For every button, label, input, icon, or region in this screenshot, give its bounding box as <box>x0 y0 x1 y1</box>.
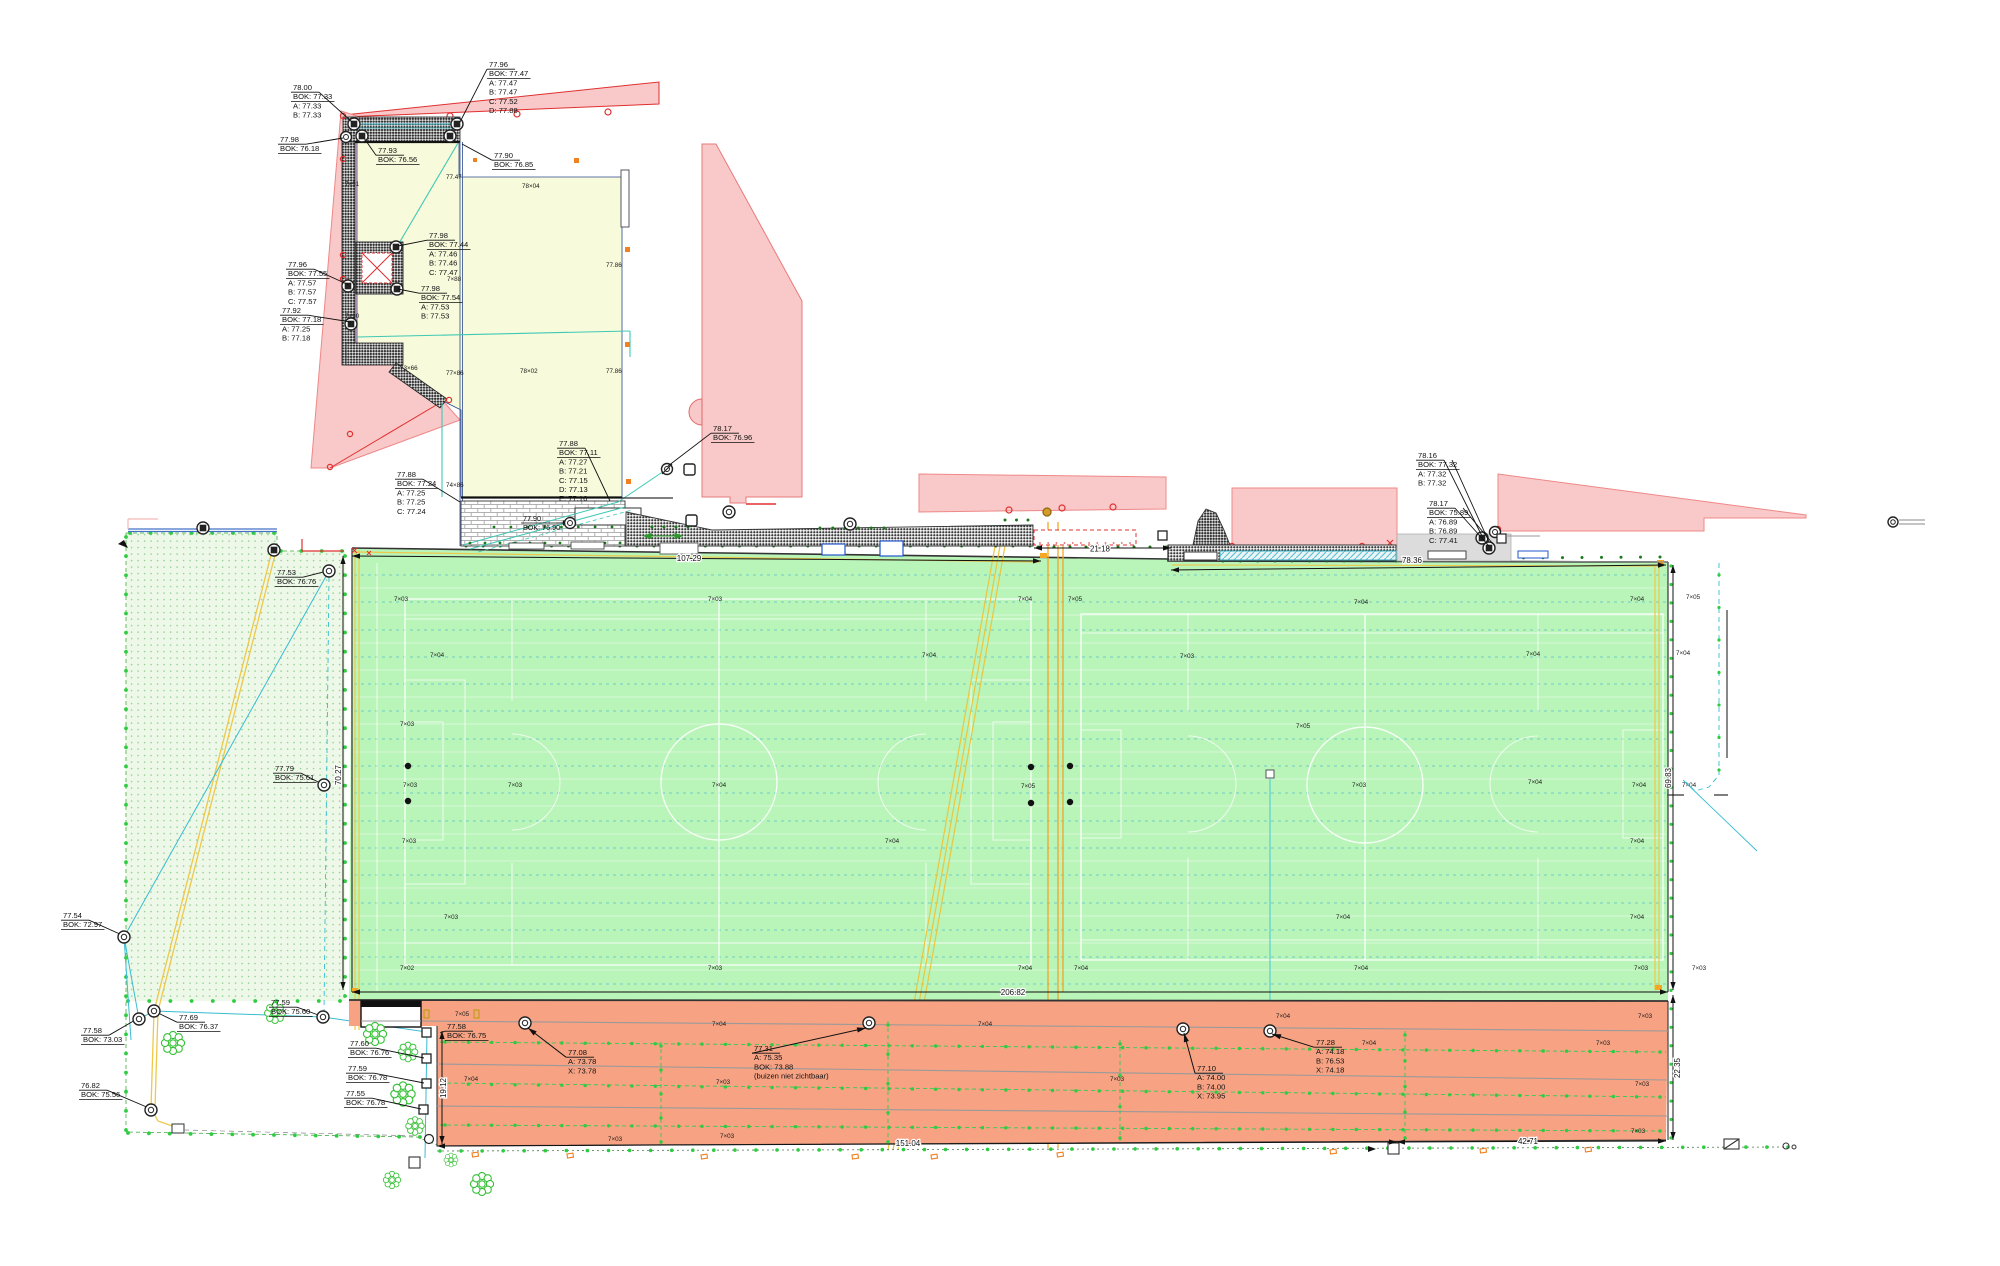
svg-text:107.29: 107.29 <box>677 554 702 563</box>
svg-text:77.96: 77.96 <box>489 60 508 69</box>
svg-text:7×04: 7×04 <box>1074 965 1089 972</box>
svg-text:77.86: 77.86 <box>606 368 622 375</box>
svg-text:7×04: 7×04 <box>1354 965 1369 972</box>
svg-text:C: 77.57: C: 77.57 <box>288 297 317 306</box>
svg-text:A: 75.35: A: 75.35 <box>754 1053 782 1062</box>
svg-text:7×04: 7×04 <box>1362 1040 1377 1047</box>
svg-text:B: 77.53: B: 77.53 <box>421 312 449 321</box>
svg-text:78.00: 78.00 <box>293 83 312 92</box>
svg-text:A: 77.47: A: 77.47 <box>489 78 517 87</box>
svg-text:7×03: 7×03 <box>1352 782 1367 789</box>
svg-text:B: 77.32: B: 77.32 <box>1418 479 1446 488</box>
svg-text:78.16: 78.16 <box>1418 451 1437 460</box>
svg-text:A: 76.89: A: 76.89 <box>1429 517 1457 526</box>
svg-text:7×03: 7×03 <box>394 596 409 603</box>
svg-text:7×02: 7×02 <box>400 965 415 972</box>
svg-text:70.27: 70.27 <box>334 764 343 785</box>
svg-text:B: 76.89: B: 76.89 <box>1429 527 1457 536</box>
svg-text:151.04: 151.04 <box>896 1139 921 1148</box>
svg-text:C: 77.47: C: 77.47 <box>429 268 458 277</box>
svg-text:A: 74.18: A: 74.18 <box>1316 1047 1344 1056</box>
svg-text:BOK: 76.85: BOK: 76.85 <box>494 160 533 169</box>
svg-text:A: 77.25: A: 77.25 <box>282 324 310 333</box>
svg-text:BOK: 77.44: BOK: 77.44 <box>429 240 468 249</box>
svg-text:7×05: 7×05 <box>1686 594 1701 601</box>
svg-text:B: 77.18: B: 77.18 <box>282 334 310 343</box>
svg-text:B: 74.00: B: 74.00 <box>1197 1082 1225 1091</box>
svg-text:7×04: 7×04 <box>978 1021 993 1028</box>
svg-text:A: 77.33: A: 77.33 <box>293 101 321 110</box>
svg-text:X: 73.95: X: 73.95 <box>1197 1092 1225 1101</box>
svg-text:A: 77.46: A: 77.46 <box>429 249 457 258</box>
svg-text:7×04: 7×04 <box>1276 1013 1291 1020</box>
svg-text:77.10: 77.10 <box>1197 1064 1216 1073</box>
svg-text:B: 77.47: B: 77.47 <box>489 88 517 97</box>
svg-text:D: 77.88: D: 77.88 <box>489 106 518 115</box>
svg-text:7×03: 7×03 <box>608 1136 623 1143</box>
svg-text:A: 77.57: A: 77.57 <box>288 278 316 287</box>
svg-text:BOK: 77.33: BOK: 77.33 <box>293 92 332 101</box>
svg-text:BOK: 76.75: BOK: 76.75 <box>447 1031 486 1040</box>
svg-text:7×03: 7×03 <box>1110 1076 1125 1083</box>
svg-text:78.36: 78.36 <box>1402 556 1423 565</box>
svg-text:7×03: 7×03 <box>1596 1040 1611 1047</box>
svg-text:7×03: 7×03 <box>1180 653 1195 660</box>
svg-text:BOK: 77.11: BOK: 77.11 <box>559 448 598 457</box>
svg-text:77.58: 77.58 <box>83 1026 102 1035</box>
svg-text:42.71: 42.71 <box>1518 1137 1539 1146</box>
svg-text:(buizen niet zichtbaar): (buizen niet zichtbaar) <box>754 1072 829 1081</box>
svg-text:7×03: 7×03 <box>708 596 723 603</box>
svg-text:BOK: 77.54: BOK: 77.54 <box>421 293 460 302</box>
svg-text:7×91: 7×91 <box>345 181 360 188</box>
svg-text:C: 77.15: C: 77.15 <box>559 476 588 485</box>
svg-text:77.92: 77.92 <box>282 306 301 315</box>
svg-text:X: 73.78: X: 73.78 <box>568 1066 596 1075</box>
svg-text:BOK: 77.47: BOK: 77.47 <box>489 69 528 78</box>
svg-text:B: 77.57: B: 77.57 <box>288 288 316 297</box>
svg-text:A: 77.27: A: 77.27 <box>559 457 587 466</box>
svg-text:77.98: 77.98 <box>280 135 299 144</box>
svg-text:7×04: 7×04 <box>1018 965 1033 972</box>
svg-text:78.17: 78.17 <box>713 424 732 433</box>
svg-text:77.90: 77.90 <box>523 514 541 523</box>
svg-text:7×04: 7×04 <box>1354 599 1369 606</box>
svg-text:7×03: 7×03 <box>403 782 418 789</box>
svg-text:7×03: 7×03 <box>508 782 523 789</box>
svg-text:A: 73.78: A: 73.78 <box>568 1057 596 1066</box>
svg-text:B: 77.25: B: 77.25 <box>397 498 425 507</box>
svg-text:B: 77.21: B: 77.21 <box>559 467 587 476</box>
svg-text:7×03: 7×03 <box>720 1133 735 1140</box>
svg-text:BOK: 75.56: BOK: 75.56 <box>81 1090 120 1099</box>
svg-text:78×02: 78×02 <box>520 368 538 375</box>
svg-text:77.54: 77.54 <box>63 911 82 920</box>
svg-text:7×03: 7×03 <box>444 914 459 921</box>
svg-text:BOK: 72.97: BOK: 72.97 <box>63 920 102 929</box>
svg-text:78×04: 78×04 <box>522 183 540 190</box>
svg-text:A: 74.00: A: 74.00 <box>1197 1073 1225 1082</box>
svg-text:77.28: 77.28 <box>1316 1038 1335 1047</box>
svg-text:BOK: 76.76: BOK: 76.76 <box>277 577 316 586</box>
svg-text:7×04: 7×04 <box>1528 779 1543 786</box>
svg-text:7×04: 7×04 <box>464 1076 479 1083</box>
svg-text:7×03: 7×03 <box>1631 1128 1646 1135</box>
svg-text:7×03: 7×03 <box>1634 965 1649 972</box>
svg-text:B: 77.33: B: 77.33 <box>293 111 321 120</box>
svg-text:7×03: 7×03 <box>1692 965 1707 972</box>
svg-text:77.86: 77.86 <box>606 262 622 269</box>
svg-text:7×04: 7×04 <box>1676 650 1691 657</box>
svg-text:7×05: 7×05 <box>455 1011 470 1018</box>
svg-text:78.17: 78.17 <box>1429 499 1448 508</box>
svg-text:7×04: 7×04 <box>1018 596 1033 603</box>
svg-text:77.88: 77.88 <box>397 470 416 479</box>
svg-text:77.88: 77.88 <box>559 439 578 448</box>
svg-text:206.82: 206.82 <box>1001 988 1026 997</box>
svg-text:B: 76.53: B: 76.53 <box>1316 1056 1344 1065</box>
svg-text:7×04: 7×04 <box>712 782 727 789</box>
svg-text:7×88: 7×88 <box>447 276 462 283</box>
svg-text:7×04: 7×04 <box>1526 651 1541 658</box>
svg-text:E: 77.16: E: 77.16 <box>559 494 587 503</box>
svg-text:BOK: 73.88: BOK: 73.88 <box>754 1062 793 1071</box>
svg-text:7×04: 7×04 <box>1630 596 1645 603</box>
svg-text:C: 77.52: C: 77.52 <box>489 97 518 106</box>
svg-text:C: 77.41: C: 77.41 <box>1429 536 1458 545</box>
svg-text:7×05: 7×05 <box>1021 783 1036 790</box>
svg-text:BOK: 76.18: BOK: 76.18 <box>280 144 319 153</box>
svg-text:77.98: 77.98 <box>421 284 440 293</box>
svg-text:77.60: 77.60 <box>350 1039 369 1048</box>
svg-text:7×04: 7×04 <box>1630 914 1645 921</box>
svg-text:BOK: 75.60: BOK: 75.60 <box>271 1007 310 1016</box>
svg-text:74×86: 74×86 <box>446 482 464 489</box>
svg-text:7×03: 7×03 <box>708 965 723 972</box>
svg-text:77.59: 77.59 <box>271 998 290 1007</box>
svg-text:A: 77.32: A: 77.32 <box>1418 469 1446 478</box>
svg-text:C: 77.24: C: 77.24 <box>397 507 426 516</box>
svg-text:X: 74.18: X: 74.18 <box>1316 1066 1344 1075</box>
svg-text:BOK: 76.90: BOK: 76.90 <box>523 523 560 532</box>
svg-text:7×04: 7×04 <box>1336 914 1351 921</box>
svg-text:A: 77.25: A: 77.25 <box>397 488 425 497</box>
svg-text:77.58: 77.58 <box>447 1022 466 1031</box>
svg-text:77.69: 77.69 <box>179 1013 198 1022</box>
svg-text:19.12: 19.12 <box>439 1077 448 1098</box>
svg-text:BOK: 76.96: BOK: 76.96 <box>713 433 752 442</box>
svg-text:7×04: 7×04 <box>1632 782 1647 789</box>
svg-text:7×03: 7×03 <box>1638 1013 1653 1020</box>
svg-text:BOK: 75.61: BOK: 75.61 <box>275 773 314 782</box>
svg-text:7×04: 7×04 <box>430 652 445 659</box>
svg-text:BOK: 77.32: BOK: 77.32 <box>1418 460 1457 469</box>
svg-text:77.53: 77.53 <box>277 568 296 577</box>
svg-text:77.79: 77.79 <box>275 764 294 773</box>
svg-text:77.96: 77.96 <box>288 260 307 269</box>
svg-text:77.98: 77.98 <box>429 231 448 240</box>
svg-text:7×03: 7×03 <box>402 838 417 845</box>
svg-text:D: 77.13: D: 77.13 <box>559 485 588 494</box>
svg-text:77.59: 77.59 <box>348 1064 367 1073</box>
svg-text:A: 77.53: A: 77.53 <box>421 302 449 311</box>
svg-text:77.47: 77.47 <box>446 174 462 181</box>
svg-text:77.93: 77.93 <box>378 146 397 155</box>
svg-text:BOK: 76.37: BOK: 76.37 <box>179 1022 218 1031</box>
svg-text:7×05: 7×05 <box>1068 596 1083 603</box>
svg-text:77.90: 77.90 <box>494 151 513 160</box>
svg-text:22.35: 22.35 <box>1673 1057 1682 1078</box>
svg-text:BOK: 77.55: BOK: 77.55 <box>288 269 327 278</box>
svg-text:B: 77.46: B: 77.46 <box>429 259 457 268</box>
svg-text:BOK: 76.56: BOK: 76.56 <box>378 155 417 164</box>
svg-text:7×04: 7×04 <box>922 652 937 659</box>
svg-text:7×05: 7×05 <box>1296 723 1311 730</box>
svg-text:21.18: 21.18 <box>1090 545 1111 554</box>
svg-text:7×03: 7×03 <box>716 1079 731 1086</box>
svg-text:7×04: 7×04 <box>712 1021 727 1028</box>
svg-text:76.82: 76.82 <box>81 1081 100 1090</box>
svg-text:73×66: 73×66 <box>400 365 418 372</box>
svg-text:77.08: 77.08 <box>568 1048 587 1057</box>
svg-text:69.83: 69.83 <box>1664 767 1673 788</box>
svg-text:77.55: 77.55 <box>346 1089 365 1098</box>
svg-text:7×04: 7×04 <box>1630 838 1645 845</box>
svg-text:7×03: 7×03 <box>1635 1081 1650 1088</box>
svg-text:77×86: 77×86 <box>446 370 464 377</box>
svg-text:7×03: 7×03 <box>400 721 415 728</box>
svg-text:BOK: 73.03: BOK: 73.03 <box>83 1035 122 1044</box>
svg-text:7×04: 7×04 <box>885 838 900 845</box>
